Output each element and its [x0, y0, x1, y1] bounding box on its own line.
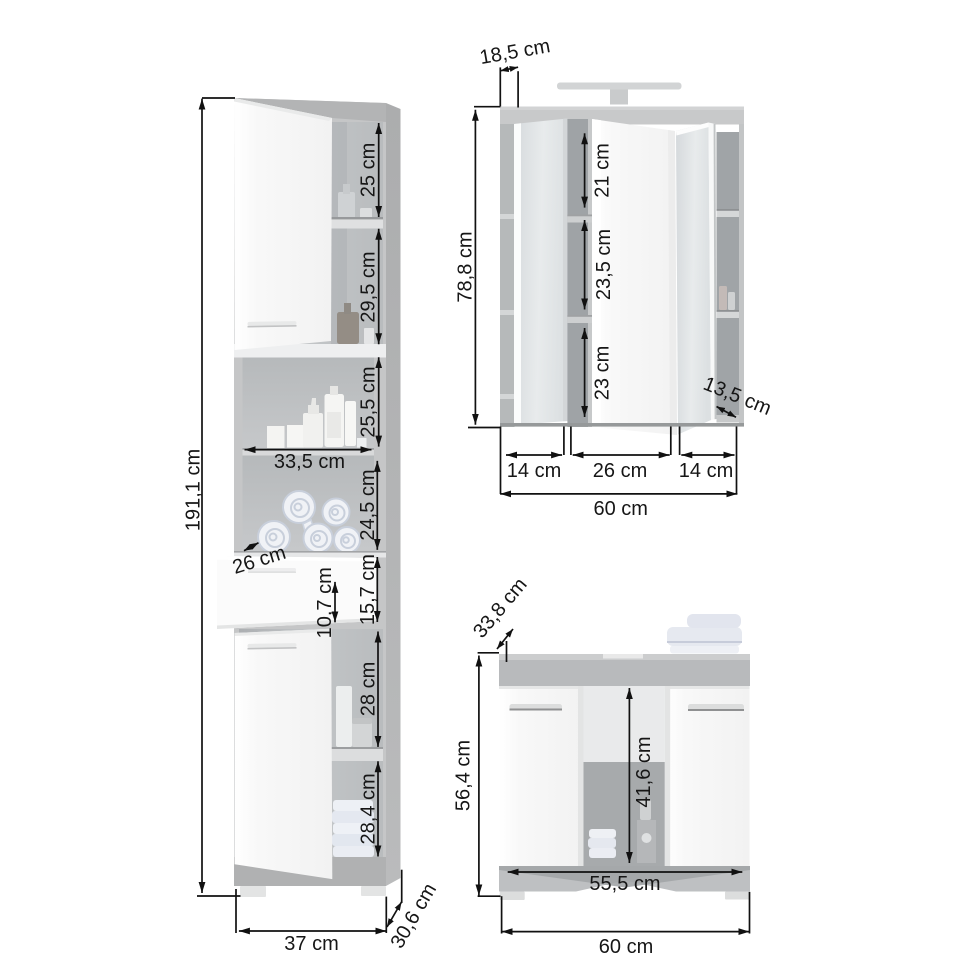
svg-text:29,5 cm: 29,5 cm — [358, 251, 380, 322]
svg-text:14 cm: 14 cm — [507, 460, 561, 482]
svg-text:33,5 cm: 33,5 cm — [274, 451, 345, 473]
svg-text:25,5 cm: 25,5 cm — [358, 366, 380, 437]
svg-text:191,1 cm: 191,1 cm — [183, 449, 205, 531]
svg-text:14 cm: 14 cm — [679, 460, 733, 482]
svg-text:55,5 cm: 55,5 cm — [589, 873, 660, 895]
svg-text:56,4 cm: 56,4 cm — [453, 740, 475, 811]
svg-text:25 cm: 25 cm — [358, 143, 380, 197]
svg-text:37 cm: 37 cm — [284, 933, 338, 955]
svg-text:28 cm: 28 cm — [358, 662, 380, 716]
svg-text:33,8 cm: 33,8 cm — [469, 574, 532, 643]
svg-text:15,7 cm: 15,7 cm — [357, 554, 379, 625]
svg-text:23 cm: 23 cm — [592, 346, 614, 400]
svg-text:21 cm: 21 cm — [592, 143, 614, 197]
svg-text:60 cm: 60 cm — [599, 936, 653, 958]
svg-text:23,5 cm: 23,5 cm — [593, 229, 615, 300]
svg-text:10,7 cm: 10,7 cm — [314, 567, 336, 638]
svg-text:78,8 cm: 78,8 cm — [455, 231, 477, 302]
svg-text:30,6 cm: 30,6 cm — [386, 880, 441, 953]
svg-text:28,4 cm: 28,4 cm — [358, 773, 380, 844]
svg-text:26 cm: 26 cm — [593, 460, 647, 482]
svg-text:24,5 cm: 24,5 cm — [357, 469, 379, 540]
svg-text:18,5 cm: 18,5 cm — [478, 35, 552, 69]
svg-text:41,6 cm: 41,6 cm — [633, 736, 655, 807]
svg-text:60 cm: 60 cm — [593, 498, 647, 520]
